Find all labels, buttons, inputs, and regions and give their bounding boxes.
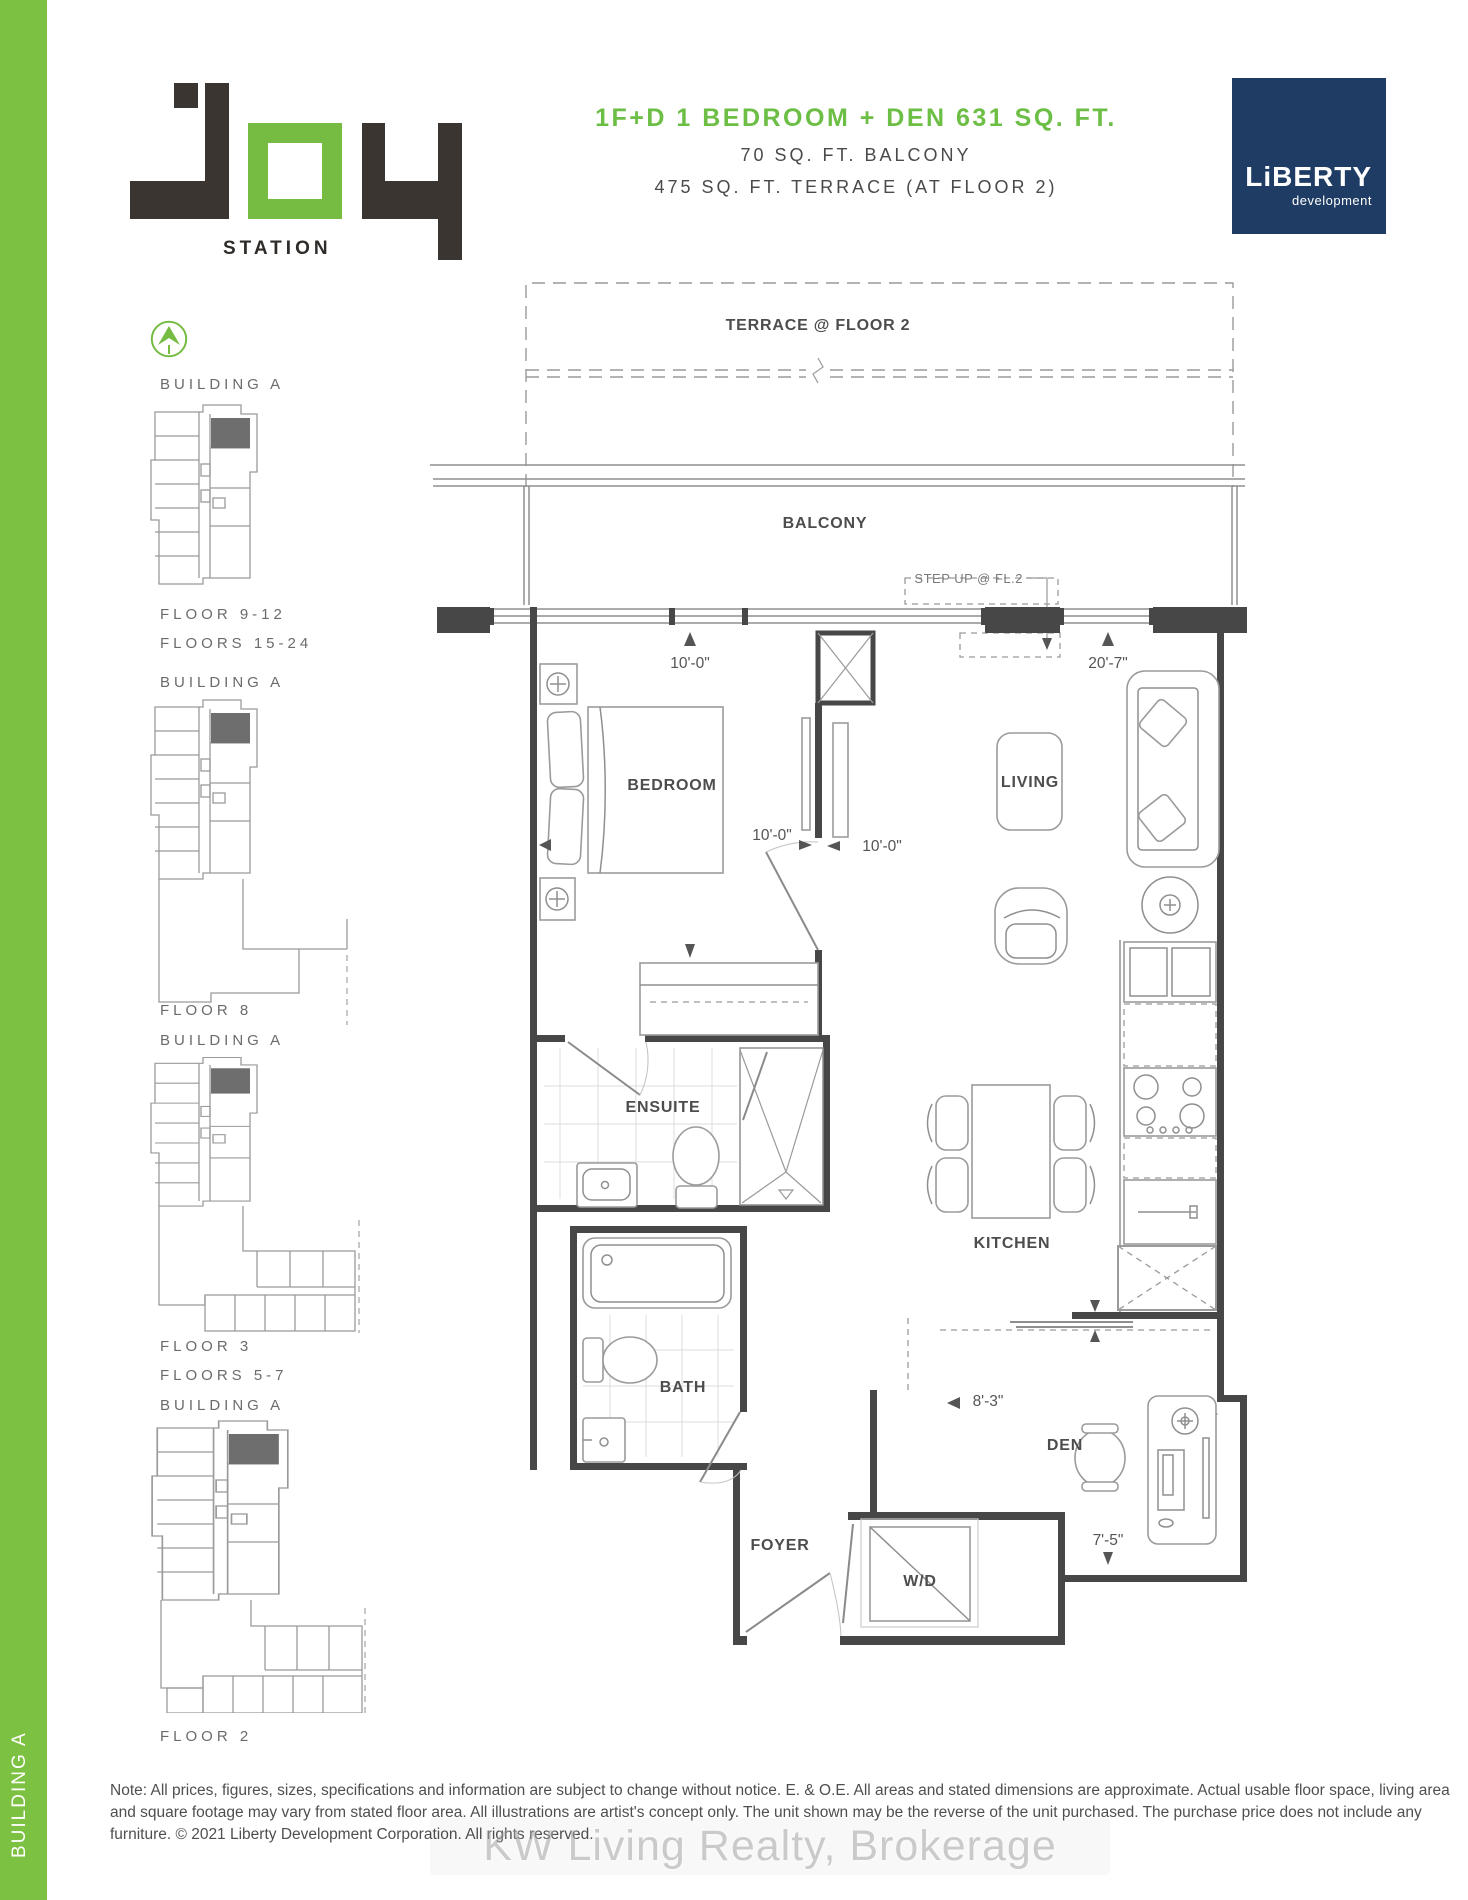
keyplan4-floors-1: FLOOR 2	[160, 1728, 252, 1745]
keyplan1-floors-1: FLOOR 9-12	[160, 606, 286, 623]
dining-table	[972, 1085, 1050, 1218]
keyplan3-building-label: BUILDING A	[160, 1032, 284, 1049]
bedroom-label: BEDROOM	[627, 777, 716, 794]
entry-door	[746, 1573, 830, 1632]
liberty-name: LiBERTY	[1245, 163, 1372, 191]
keyplan-floor9-24	[147, 402, 260, 585]
keyplan1-building-label: BUILDING A	[160, 376, 284, 393]
bedroom-door	[766, 852, 818, 950]
ensuite-door	[568, 1042, 640, 1095]
step-up-label: STEP UP @ FL.2	[914, 571, 1023, 586]
liberty-sub: development	[1292, 193, 1372, 208]
step-up-arrow	[1042, 638, 1052, 650]
floorplan-sheet: BUILDING A STATION 1F+D 1 BEDROOM + DEN …	[0, 0, 1468, 1900]
armchair	[995, 888, 1067, 964]
keyplan-floor3-5-7	[147, 1055, 362, 1335]
sofa	[1127, 671, 1219, 867]
keyplan3-floors-1: FLOOR 3	[160, 1338, 252, 1355]
bedroom-closet	[640, 944, 818, 1035]
kitchen-label: KITCHEN	[974, 1235, 1051, 1252]
joy-station-logo: STATION	[128, 82, 468, 267]
den: DEN	[1047, 1396, 1216, 1544]
plan-subtitle-terrace: 475 SQ. FT. TERRACE (AT FLOOR 2)	[456, 177, 1256, 198]
media-unit	[833, 723, 848, 837]
office-chair	[1075, 1424, 1125, 1491]
bathtub	[583, 1238, 731, 1308]
wd-label: W/D	[903, 1573, 937, 1590]
dim-hall-length: 8'-3"	[973, 1393, 1004, 1410]
living-label: LIVING	[1001, 774, 1059, 791]
laundry-door	[843, 1524, 853, 1623]
laundry-closet: W/D	[843, 1519, 978, 1627]
keyplan-floor8	[147, 697, 360, 1025]
terrace-label: TERRACE @ FLOOR 2	[726, 317, 911, 334]
fridge	[1118, 1246, 1216, 1310]
bedroom: BEDROOM	[539, 664, 848, 1035]
sidebar-vertical-label: BUILDING A	[9, 1698, 31, 1858]
ensuite-bathroom: ENSUITE	[544, 1042, 823, 1208]
bath-label: BATH	[660, 1379, 706, 1396]
keyplan2-floors-1: FLOOR 8	[160, 1002, 252, 1019]
dim-den-width: 7'-5"	[1093, 1532, 1124, 1549]
balcony-area: BALCONY STEP UP @ FL.2	[430, 465, 1245, 657]
north-arrow-icon	[150, 320, 188, 358]
dresser	[802, 718, 810, 830]
main-bathroom: BATH	[583, 1238, 741, 1483]
dishwasher	[1124, 1004, 1216, 1066]
balcony-label: BALCONY	[783, 515, 868, 532]
pillow	[547, 711, 584, 788]
station-wordmark: STATION	[223, 238, 332, 259]
dim-living-depth: 10'-0"	[862, 838, 901, 855]
pillow	[547, 788, 584, 865]
ensuite-label: ENSUITE	[626, 1099, 701, 1116]
toilet	[673, 1127, 719, 1185]
terrace-area: TERRACE @ FLOOR 2	[526, 283, 1233, 487]
kitchen: KITCHEN	[908, 940, 1216, 1390]
keyplan2-building-label: BUILDING A	[160, 674, 284, 691]
toilet	[583, 1338, 603, 1382]
shower	[740, 1048, 823, 1205]
keyplan-floor2	[147, 1418, 367, 1713]
brokerage-watermark: KW Living Realty, Brokerage	[430, 1818, 1110, 1875]
foyer: FOYER	[746, 1537, 841, 1636]
pantry-cabinet	[1124, 1180, 1216, 1244]
dim-living-width: 20'-7"	[1088, 655, 1127, 672]
dim-bedroom-width: 10'-0"	[670, 655, 709, 672]
living-room: LIVING	[995, 671, 1219, 964]
stove	[1124, 1068, 1216, 1136]
plan-subtitle-balcony: 70 SQ. FT. BALCONY	[456, 145, 1256, 166]
joy-logo-letters	[130, 83, 462, 260]
kitchen-cabinet	[1124, 942, 1216, 1002]
dim-bedroom-depth: 10'-0"	[752, 827, 791, 844]
keyplan3-floors-2: FLOORS 5-7	[160, 1367, 288, 1384]
unit-floor-plan: TERRACE @ FLOOR 2 BALCONY STEP UP @ FL.2	[430, 235, 1260, 1685]
den-label: DEN	[1047, 1437, 1083, 1454]
building-a-sidebar	[0, 0, 47, 1900]
foyer-label: FOYER	[750, 1537, 809, 1554]
keyplan4-building-label: BUILDING A	[160, 1397, 284, 1414]
keyplan1-floors-2: FLOORS 15-24	[160, 635, 312, 652]
plan-title: 1F+D 1 BEDROOM + DEN 631 SQ. FT.	[456, 104, 1256, 133]
liberty-development-logo: LiBERTY development	[1232, 78, 1386, 234]
